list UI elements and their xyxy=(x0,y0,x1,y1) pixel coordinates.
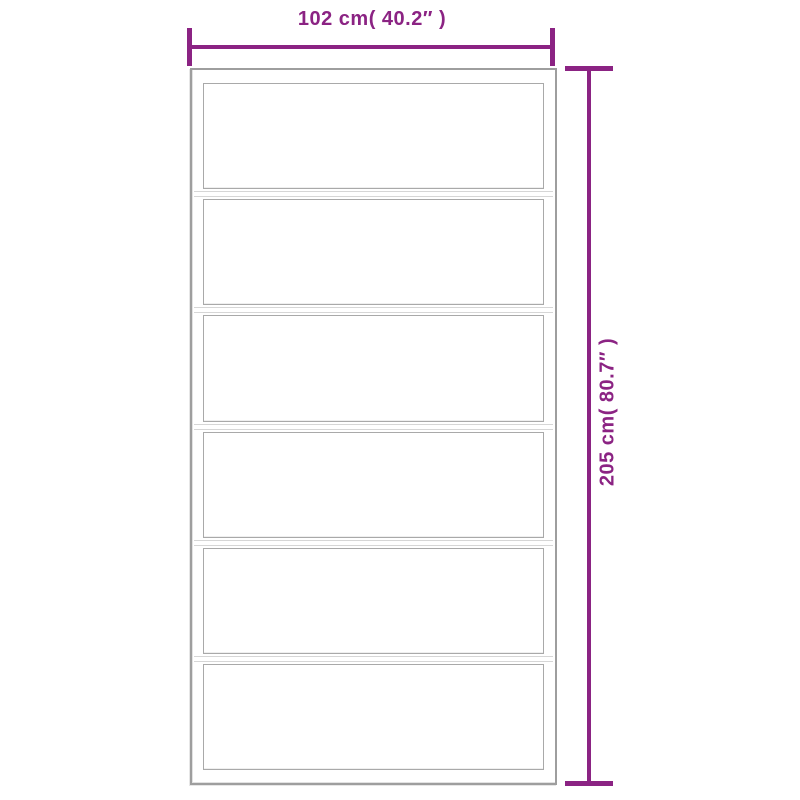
door-outline xyxy=(190,68,557,785)
product-dimension-image: 102 cm( 40.2″ ) 205 cm( 80.7″ ) xyxy=(0,0,800,800)
width-dimension-label: 102 cm( 40.2″ ) xyxy=(189,8,555,31)
door-panel xyxy=(203,83,544,189)
width-dimension-line xyxy=(187,45,555,49)
door-rail xyxy=(194,305,553,315)
height-dimension-cap-bottom xyxy=(565,781,613,786)
height-dimension-label: 205 cm( 80.7″ ) xyxy=(597,338,620,486)
door-panel xyxy=(203,315,544,421)
door-panel xyxy=(203,432,544,538)
height-dimension-cap-top xyxy=(565,66,613,71)
door-rail xyxy=(194,422,553,432)
door-panel xyxy=(203,548,544,654)
height-dimension-line xyxy=(587,66,591,785)
door-panel xyxy=(203,199,544,305)
width-dimension-cap-right xyxy=(550,28,555,66)
door-panel xyxy=(203,664,544,770)
width-dimension-cap-left xyxy=(187,28,192,66)
door-rail xyxy=(194,654,553,664)
door-rail xyxy=(194,189,553,199)
door-rail xyxy=(194,538,553,548)
